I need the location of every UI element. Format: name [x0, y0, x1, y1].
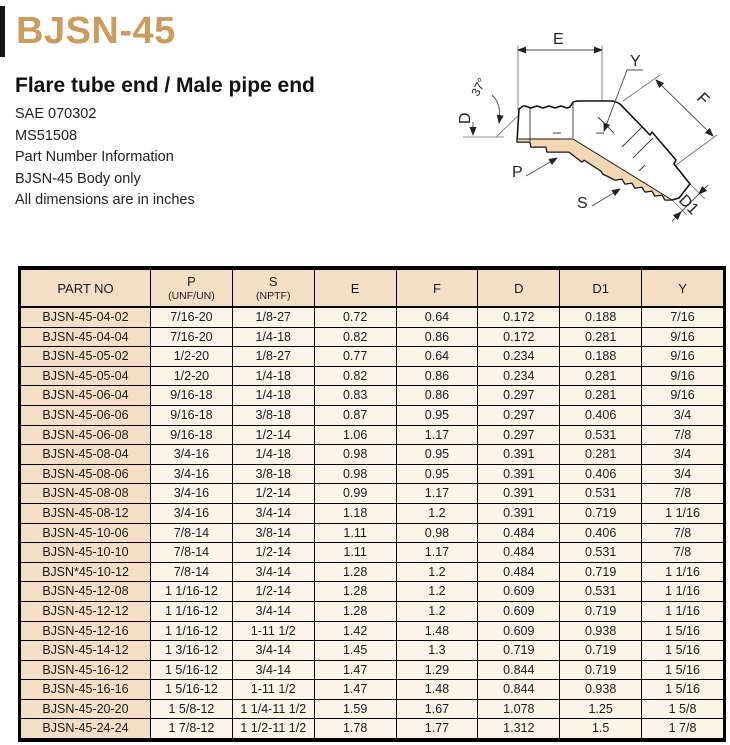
- cell-value: 1 7/8-12: [151, 719, 233, 739]
- cell-value: 1 1/16: [642, 582, 724, 602]
- cell-value: 1 1/16: [642, 601, 724, 621]
- cell-value: 0.406: [560, 523, 642, 543]
- cell-value: 1 5/16: [642, 641, 724, 661]
- cell-part-no: BJSN-45-05-04: [21, 366, 151, 386]
- cell-value: 0.98: [396, 523, 478, 543]
- cell-value: 0.64: [396, 307, 478, 327]
- table-row: BJSN-45-08-043/4-161/4-180.980.950.3910.…: [21, 445, 724, 465]
- cell-value: 1/4-18: [232, 366, 314, 386]
- cell-value: 0.95: [396, 464, 478, 484]
- cell-value: 7/8: [642, 425, 724, 445]
- cell-value: 1/2-14: [232, 425, 314, 445]
- cell-value: 0.188: [560, 307, 642, 327]
- cell-value: 0.297: [478, 386, 560, 406]
- cell-value: 1 5/16: [642, 660, 724, 680]
- cell-value: 1 3/16-12: [151, 641, 233, 661]
- cell-value: 0.484: [478, 523, 560, 543]
- table-row: BJSN-45-04-027/16-201/8-270.720.640.1720…: [21, 307, 724, 327]
- cell-value: 0.391: [478, 464, 560, 484]
- cell-value: 0.82: [314, 366, 396, 386]
- cell-value: 7/8: [642, 543, 724, 563]
- cell-value: 1 1/16-12: [151, 621, 233, 641]
- cell-value: 1.5: [560, 719, 642, 739]
- cell-value: 0.531: [560, 425, 642, 445]
- cell-value: 1 1/16: [642, 503, 724, 523]
- cell-value: 1/2-14: [232, 543, 314, 563]
- cell-value: 9/16-18: [151, 386, 233, 406]
- cell-value: 0.719: [560, 562, 642, 582]
- cell-value: 1 5/16-12: [151, 680, 233, 700]
- cell-value: 1 1/16-12: [151, 601, 233, 621]
- table-row: BJSN-45-12-081 1/16-121/2-141.281.20.609…: [21, 582, 724, 602]
- cell-value: 9/16-18: [151, 405, 233, 425]
- cell-value: 1.67: [396, 699, 478, 719]
- cell-value: 0.82: [314, 327, 396, 347]
- cell-part-no: BJSN-45-12-16: [21, 621, 151, 641]
- cell-value: 3/4-14: [232, 562, 314, 582]
- ext-line-f-lower: [676, 135, 717, 165]
- cell-value: 0.77: [314, 347, 396, 367]
- dim-label-d: D: [457, 112, 474, 124]
- cell-value: 1.312: [478, 719, 560, 739]
- col-header-p: P(UNF/UN): [151, 270, 233, 308]
- cell-value: 0.95: [396, 405, 478, 425]
- cell-part-no: BJSN-45-08-08: [21, 484, 151, 504]
- cell-value: 7/16-20: [151, 327, 233, 347]
- cell-value: 1.45: [314, 641, 396, 661]
- cell-value: 0.531: [560, 582, 642, 602]
- cell-value: 1.77: [396, 719, 478, 739]
- cell-value: 1 7/8: [642, 719, 724, 739]
- table-row: BJSN-45-05-041/2-201/4-180.820.860.2340.…: [21, 366, 724, 386]
- col-header-part-no: PART NO: [21, 270, 151, 308]
- cell-part-no: BJSN-45-14-12: [21, 641, 151, 661]
- col-header-d: D: [478, 270, 560, 308]
- dim-line-f: [656, 80, 713, 136]
- cell-value: 0.281: [560, 386, 642, 406]
- cell-value: 1/8-27: [232, 347, 314, 367]
- cell-value: 0.87: [314, 405, 396, 425]
- cell-value: 1 5/16-12: [151, 660, 233, 680]
- cell-value: 0.938: [560, 621, 642, 641]
- cell-value: 0.484: [478, 543, 560, 563]
- cell-value: 3/8-14: [232, 523, 314, 543]
- cell-value: 9/16: [642, 366, 724, 386]
- dim-label-y: Y: [630, 53, 641, 70]
- info-block: SAE 070302 MS51508 Part Number Informati…: [15, 104, 195, 212]
- col-header-f: F: [396, 270, 478, 308]
- table-row: BJSN*45-10-127/8-143/4-141.281.20.4840.7…: [21, 562, 724, 582]
- cell-value: 3/4: [642, 464, 724, 484]
- cell-value: 9/16: [642, 327, 724, 347]
- table-row: BJSN-45-06-089/16-181/2-141.061.170.2970…: [21, 425, 724, 445]
- cell-value: 0.99: [314, 484, 396, 504]
- cell-value: 1.17: [396, 543, 478, 563]
- cell-value: 1.29: [396, 660, 478, 680]
- cell-part-no: BJSN-45-10-10: [21, 543, 151, 563]
- cell-value: 0.391: [478, 484, 560, 504]
- cell-value: 0.484: [478, 562, 560, 582]
- cell-value: 3/8-18: [232, 405, 314, 425]
- cell-value: 1.48: [396, 621, 478, 641]
- cell-value: 1.2: [396, 562, 478, 582]
- cell-part-no: BJSN-45-06-06: [21, 405, 151, 425]
- cell-value: 0.172: [478, 307, 560, 327]
- leader-line-p: [526, 158, 557, 176]
- cell-value: 7/8-14: [151, 543, 233, 563]
- cell-value: 3/4-14: [232, 601, 314, 621]
- cell-value: 1.59: [314, 699, 396, 719]
- page-subtitle: Flare tube end / Male pipe end: [15, 74, 315, 98]
- cell-value: 1 1/4-11 1/2: [232, 699, 314, 719]
- cell-value: 1.28: [314, 601, 396, 621]
- cell-value: 1/2-14: [232, 582, 314, 602]
- cell-value: 1/8-27: [232, 307, 314, 327]
- cell-part-no: BJSN-45-12-08: [21, 582, 151, 602]
- info-sae: SAE 070302: [15, 104, 195, 126]
- cell-value: 1-11 1/2: [232, 621, 314, 641]
- cell-value: 1.42: [314, 621, 396, 641]
- cell-value: 0.98: [314, 445, 396, 465]
- cell-part-no: BJSN-45-12-12: [21, 601, 151, 621]
- cell-value: 1/4-18: [232, 386, 314, 406]
- table-row: BJSN-45-12-161 1/16-121-11 1/21.421.480.…: [21, 621, 724, 641]
- table-row: BJSN-45-08-083/4-161/2-140.991.170.3910.…: [21, 484, 724, 504]
- cell-value: 1.28: [314, 582, 396, 602]
- cell-value: 0.609: [478, 601, 560, 621]
- cell-value: 0.844: [478, 660, 560, 680]
- table-row: BJSN-45-16-161 5/16-121-11 1/21.471.480.…: [21, 680, 724, 700]
- cell-part-no: BJSN-45-08-12: [21, 503, 151, 523]
- dim-label-e: E: [553, 31, 564, 48]
- cell-value: 1.17: [396, 484, 478, 504]
- cell-value: 1/4-18: [232, 445, 314, 465]
- cell-value: 1.25: [560, 699, 642, 719]
- col-header-s: S(NPTF): [232, 270, 314, 308]
- ext-line-f-upper: [623, 75, 660, 101]
- table-row: BJSN-45-04-047/16-201/4-180.820.860.1720…: [21, 327, 724, 347]
- cell-value: 0.391: [478, 503, 560, 523]
- parts-table: PART NO P(UNF/UN) S(NPTF) E F D D1 Y BJS…: [18, 266, 726, 742]
- cell-value: 7/8: [642, 523, 724, 543]
- cell-value: 1.078: [478, 699, 560, 719]
- cell-value: 7/16: [642, 307, 724, 327]
- cell-value: 1.17: [396, 425, 478, 445]
- dim-arrow-d1-a: [675, 212, 681, 218]
- cell-value: 1.18: [314, 503, 396, 523]
- cell-value: 0.297: [478, 425, 560, 445]
- cell-value: 0.719: [560, 660, 642, 680]
- cell-value: 0.719: [560, 503, 642, 523]
- cell-value: 9/16: [642, 386, 724, 406]
- table-header-row: PART NO P(UNF/UN) S(NPTF) E F D D1 Y: [21, 270, 724, 308]
- cell-value: 1/2-20: [151, 366, 233, 386]
- cell-value: 0.281: [560, 327, 642, 347]
- parts-table-body: BJSN-45-04-027/16-201/8-270.720.640.1720…: [21, 307, 724, 739]
- cell-value: 0.719: [478, 641, 560, 661]
- dim-label-f: F: [693, 90, 712, 109]
- cell-value: 1 5/16: [642, 680, 724, 700]
- cell-part-no: BJSN-45-24-24: [21, 719, 151, 739]
- cell-value: 1 5/16: [642, 621, 724, 641]
- table-row: BJSN-45-06-049/16-181/4-180.830.860.2970…: [21, 386, 724, 406]
- cell-value: 3/4: [642, 405, 724, 425]
- cell-value: 0.86: [396, 386, 478, 406]
- cell-value: 0.609: [478, 582, 560, 602]
- col-header-y: Y: [642, 270, 724, 308]
- cell-value: 3/4-16: [151, 484, 233, 504]
- cell-part-no: BJSN-45-20-20: [21, 699, 151, 719]
- cell-part-no: BJSN-45-08-06: [21, 464, 151, 484]
- col-header-d1: D1: [560, 270, 642, 308]
- cell-value: 7/8: [642, 484, 724, 504]
- cell-value: 0.86: [396, 327, 478, 347]
- cell-value: 0.86: [396, 366, 478, 386]
- cell-value: 1.48: [396, 680, 478, 700]
- cell-value: 1.78: [314, 719, 396, 739]
- cell-part-no: BJSN-45-06-04: [21, 386, 151, 406]
- fitting-outline: [517, 101, 690, 200]
- dim-label-s: S: [577, 195, 588, 212]
- table-row: BJSN-45-10-107/8-141/2-141.111.170.4840.…: [21, 543, 724, 563]
- cell-value: 1 1/16-12: [151, 582, 233, 602]
- cell-value: 1/2-14: [232, 484, 314, 504]
- col-header-e: E: [314, 270, 396, 308]
- cell-part-no: BJSN*45-10-12: [21, 562, 151, 582]
- cell-value: 0.188: [560, 347, 642, 367]
- cell-value: 0.391: [478, 445, 560, 465]
- cell-value: 1 5/8: [642, 699, 724, 719]
- cell-value: 0.531: [560, 484, 642, 504]
- cell-part-no: BJSN-45-08-04: [21, 445, 151, 465]
- cell-value: 0.172: [478, 327, 560, 347]
- cell-value: 1.2: [396, 503, 478, 523]
- table-row: BJSN-45-10-067/8-143/8-141.110.980.4840.…: [21, 523, 724, 543]
- info-body-only: BJSN-45 Body only: [15, 169, 195, 191]
- info-ms: MS51508: [15, 126, 195, 148]
- cell-value: 9/16-18: [151, 425, 233, 445]
- cell-part-no: BJSN-45-05-02: [21, 347, 151, 367]
- cell-value: 0.297: [478, 405, 560, 425]
- angle-arc-37: [492, 95, 500, 123]
- table-row: BJSN-45-24-241 7/8-121 1/2-11 1/21.781.7…: [21, 719, 724, 739]
- cell-value: 0.719: [560, 601, 642, 621]
- table-row: BJSN-45-05-021/2-201/8-270.770.640.2340.…: [21, 347, 724, 367]
- cell-value: 0.281: [560, 445, 642, 465]
- cell-value: 0.83: [314, 386, 396, 406]
- cell-part-no: BJSN-45-04-02: [21, 307, 151, 327]
- table-row: BJSN-45-20-201 5/8-121 1/4-11 1/21.591.6…: [21, 699, 724, 719]
- cell-value: 0.281: [560, 366, 642, 386]
- info-part-number: Part Number Information: [15, 147, 195, 169]
- dim-label-p: P: [512, 164, 523, 181]
- table-row: BJSN-45-06-069/16-183/8-180.870.950.2970…: [21, 405, 724, 425]
- cell-value: 1/2-20: [151, 347, 233, 367]
- cell-value: 3/4-16: [151, 464, 233, 484]
- cell-value: 0.719: [560, 641, 642, 661]
- cell-value: 9/16: [642, 347, 724, 367]
- cell-value: 3/8-18: [232, 464, 314, 484]
- cell-value: 3/4-14: [232, 503, 314, 523]
- cell-value: 1.3: [396, 641, 478, 661]
- cell-value: 3/4-16: [151, 445, 233, 465]
- cell-value: 0.531: [560, 543, 642, 563]
- cell-value: 7/8-14: [151, 562, 233, 582]
- cell-value: 1.47: [314, 680, 396, 700]
- table-row: BJSN-45-12-121 1/16-123/4-141.281.20.609…: [21, 601, 724, 621]
- cell-value: 1.11: [314, 523, 396, 543]
- cell-part-no: BJSN-45-16-16: [21, 680, 151, 700]
- leader-line-s: [592, 189, 620, 206]
- cell-value: 3/4-14: [232, 660, 314, 680]
- cell-value: 1 1/16: [642, 562, 724, 582]
- cell-value: 0.95: [396, 445, 478, 465]
- cell-value: 1.2: [396, 601, 478, 621]
- fitting-diagram: E Y F D 37° P S D1: [420, 5, 730, 240]
- cell-value: 1/4-18: [232, 327, 314, 347]
- cell-value: 1.11: [314, 543, 396, 563]
- cell-value: 0.234: [478, 347, 560, 367]
- cell-value: 0.64: [396, 347, 478, 367]
- cell-value: 0.844: [478, 680, 560, 700]
- cell-value: 0.98: [314, 464, 396, 484]
- cell-value: 1-11 1/2: [232, 680, 314, 700]
- info-dimensions: All dimensions are in inches: [15, 190, 195, 212]
- cell-part-no: BJSN-45-10-06: [21, 523, 151, 543]
- cell-value: 0.72: [314, 307, 396, 327]
- angle-label-37: 37°: [468, 76, 489, 99]
- cell-value: 3/4-14: [232, 641, 314, 661]
- cell-value: 1 1/2-11 1/2: [232, 719, 314, 739]
- cell-value: 1.47: [314, 660, 396, 680]
- table-row: BJSN-45-14-121 3/16-123/4-141.451.30.719…: [21, 641, 724, 661]
- cell-value: 0.234: [478, 366, 560, 386]
- cell-value: 7/8-14: [151, 523, 233, 543]
- cell-value: 1.2: [396, 582, 478, 602]
- cell-value: 1.28: [314, 562, 396, 582]
- dim-arrow-d1-b: [699, 188, 705, 194]
- cell-value: 0.406: [560, 405, 642, 425]
- cell-value: 0.406: [560, 464, 642, 484]
- cell-value: 3/4: [642, 445, 724, 465]
- cell-value: 7/16-20: [151, 307, 233, 327]
- cell-value: 0.938: [560, 680, 642, 700]
- title-accent-bar: [0, 6, 5, 57]
- cell-part-no: BJSN-45-04-04: [21, 327, 151, 347]
- cell-value: 0.609: [478, 621, 560, 641]
- table-row: BJSN-45-08-063/4-163/8-180.980.950.3910.…: [21, 464, 724, 484]
- cell-part-no: BJSN-45-16-12: [21, 660, 151, 680]
- page-title: BJSN-45: [16, 10, 176, 53]
- cell-value: 1.06: [314, 425, 396, 445]
- table-row: BJSN-45-08-123/4-163/4-141.181.20.3910.7…: [21, 503, 724, 523]
- table-row: BJSN-45-16-121 5/16-123/4-141.471.290.84…: [21, 660, 724, 680]
- cell-part-no: BJSN-45-06-08: [21, 425, 151, 445]
- cell-value: 3/4-16: [151, 503, 233, 523]
- cell-value: 1 5/8-12: [151, 699, 233, 719]
